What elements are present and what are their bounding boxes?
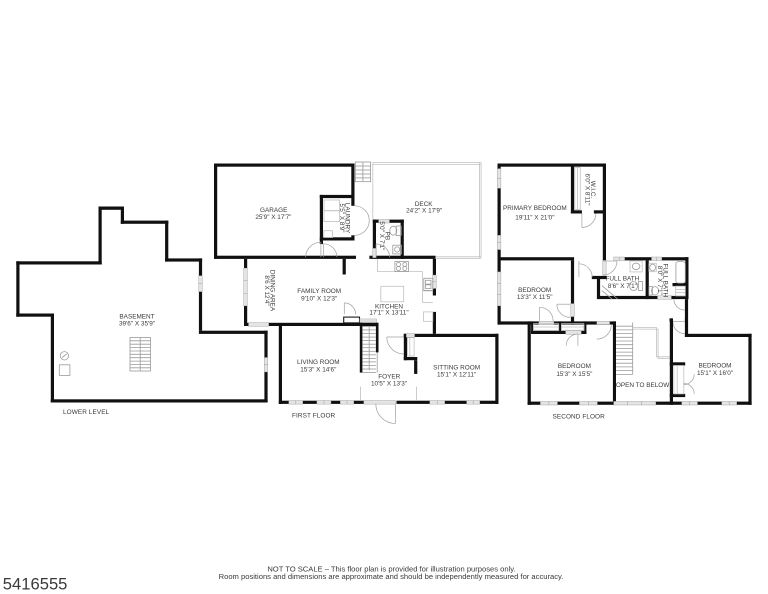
svg-text:8'6 X 12'4": 8'6 X 12'4" xyxy=(263,275,270,305)
svg-text:15'3" X 14'6": 15'3" X 14'6" xyxy=(300,366,336,373)
svg-text:BEDROOM: BEDROOM xyxy=(698,362,731,369)
svg-text:19'11" X 21'0": 19'11" X 21'0" xyxy=(515,214,554,221)
svg-text:15'1" X 12'11": 15'1" X 12'11" xyxy=(437,371,476,378)
svg-text:8'0" X 7'1": 8'0" X 7'1" xyxy=(656,266,663,295)
svg-text:9'10" X 12'3": 9'10" X 12'3" xyxy=(301,295,337,302)
svg-text:25'9" X 17'7": 25'9" X 17'7" xyxy=(255,214,291,221)
svg-text:OPEN TO BELOW: OPEN TO BELOW xyxy=(616,382,670,389)
svg-text:39'6" X 35'9": 39'6" X 35'9" xyxy=(119,321,155,328)
svg-text:GARAGE: GARAGE xyxy=(260,207,287,214)
svg-text:BEDROOM: BEDROOM xyxy=(558,363,591,370)
svg-text:PRIMARY BEDROOM: PRIMARY BEDROOM xyxy=(503,205,567,212)
svg-text:FIRST FLOOR: FIRST FLOOR xyxy=(292,412,336,419)
svg-text:10'5" X 13'3": 10'5" X 13'3" xyxy=(371,380,407,387)
svg-text:5416555: 5416555 xyxy=(3,574,68,593)
svg-text:17'1" X 13'11": 17'1" X 13'11" xyxy=(369,310,408,317)
svg-text:5'0" X 7'1": 5'0" X 7'1" xyxy=(378,221,385,250)
svg-text:Room positions and dimensions: Room positions and dimensions are approx… xyxy=(219,572,564,581)
svg-text:15'1" X 16'0": 15'1" X 16'0" xyxy=(697,370,733,377)
svg-text:8'6" X 7'1": 8'6" X 7'1" xyxy=(608,283,637,290)
svg-text:15'3" X 15'5": 15'3" X 15'5" xyxy=(556,371,592,378)
svg-text:6'0" X 8'11": 6'0" X 8'11" xyxy=(583,173,590,205)
svg-text:24'2" X 17'9": 24'2" X 17'9" xyxy=(406,208,442,215)
svg-text:FOYER: FOYER xyxy=(378,373,400,380)
svg-text:FULL BATH: FULL BATH xyxy=(606,275,640,282)
svg-text:SECOND FLOOR: SECOND FLOOR xyxy=(553,414,606,421)
svg-text:FAMILY ROOM: FAMILY ROOM xyxy=(297,288,341,295)
svg-text:LIVING ROOM: LIVING ROOM xyxy=(297,359,340,366)
svg-text:13'3" X 11'5": 13'3" X 11'5" xyxy=(517,294,553,301)
svg-text:LOWER LEVEL: LOWER LEVEL xyxy=(63,409,110,416)
svg-text:BEDROOM: BEDROOM xyxy=(518,287,551,294)
svg-text:SITTING ROOM: SITTING ROOM xyxy=(433,364,480,371)
svg-text:5'5" X 8'9": 5'5" X 8'9" xyxy=(338,203,345,232)
